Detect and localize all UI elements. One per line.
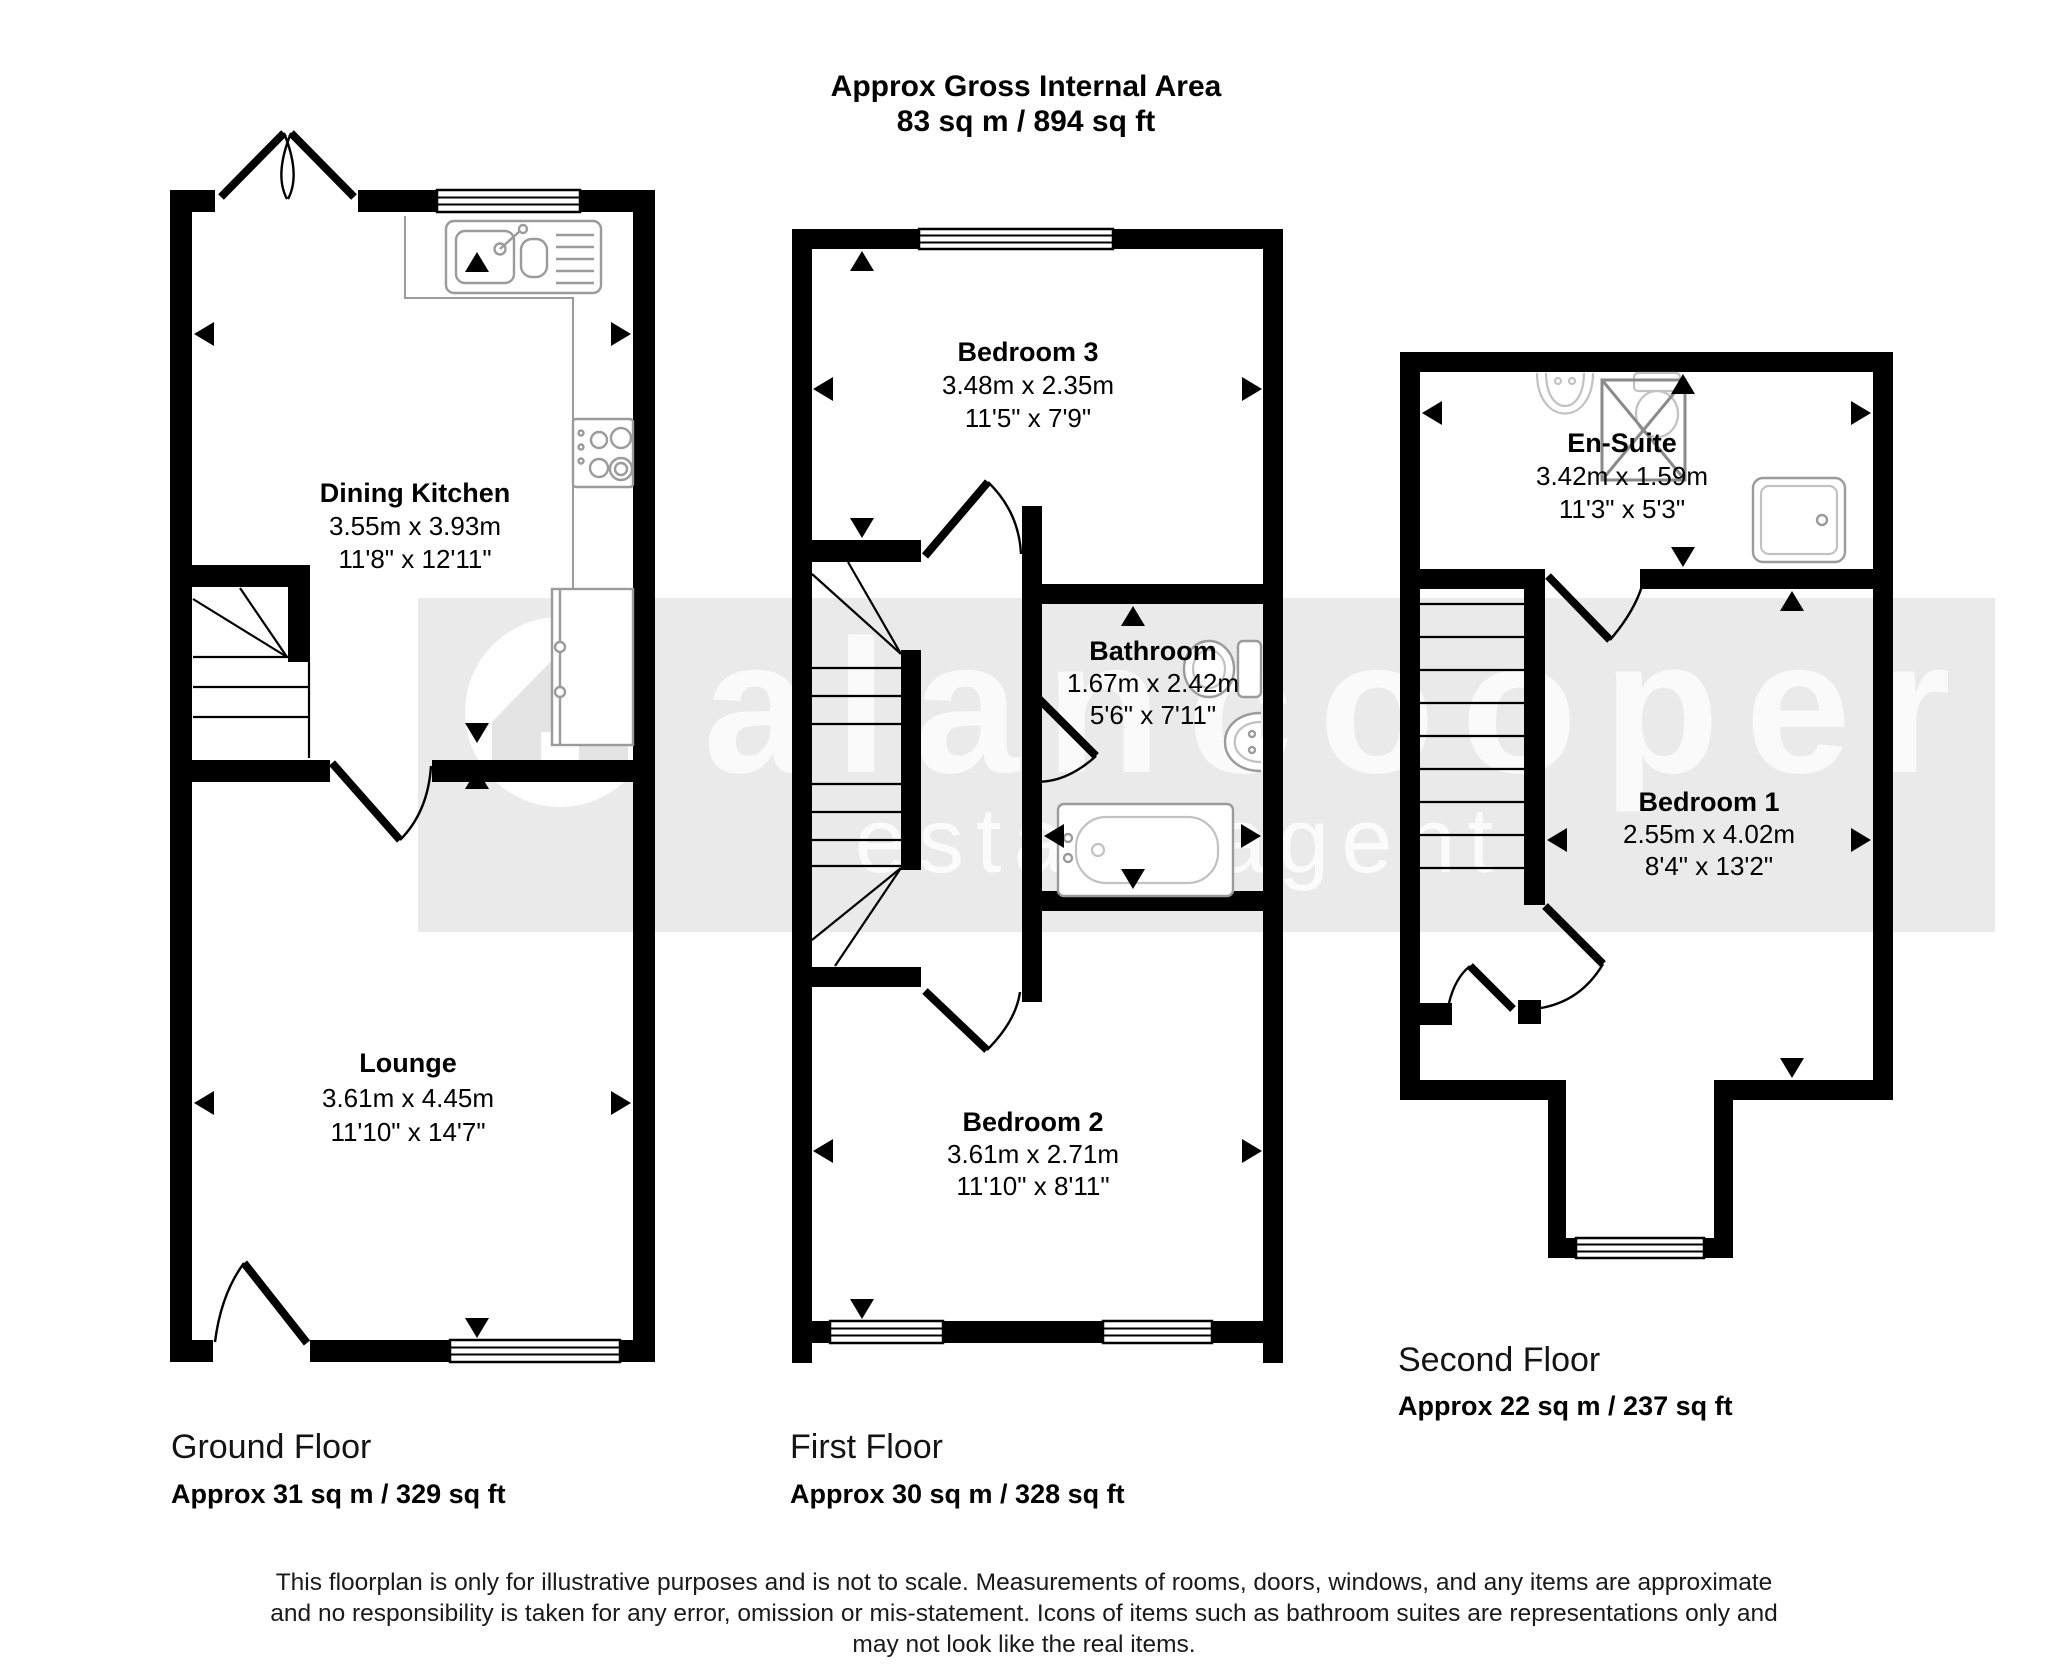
first-window-bottom-right: [1103, 1321, 1212, 1343]
room-name: Bedroom 3: [957, 337, 1098, 367]
front-door: [215, 1263, 307, 1343]
room-metric: 2.55m x 4.02m: [1623, 819, 1795, 849]
bedroom3-door: [925, 482, 1021, 556]
room-label-lounge: Lounge 3.61m x 4.45m 11'10" x 14'7": [322, 1048, 494, 1147]
title-line: Approx Gross Internal Area: [831, 70, 1222, 103]
floor-label-ground: Ground Floor Approx 31 sq m / 329 sq ft: [171, 1428, 506, 1509]
room-imperial: 11'10" x 14'7": [330, 1117, 485, 1147]
floor-area: Approx 22 sq m / 237 sq ft: [1398, 1391, 1733, 1421]
kitchen-sink-icon: [446, 221, 601, 293]
watermark-brand: alancooper: [703, 601, 1977, 813]
room-name: Dining Kitchen: [320, 478, 511, 508]
floor-name: First Floor: [790, 1428, 943, 1466]
shower-icon: [1753, 478, 1845, 562]
room-metric: 1.67m x 2.42m: [1067, 668, 1239, 698]
room-imperial: 5'6" x 7'11": [1090, 700, 1216, 730]
room-label-bedroom2: Bedroom 2 3.61m x 2.71m 11'10" x 8'11": [947, 1107, 1119, 1201]
floor-label-second: Second Floor Approx 22 sq m / 237 sq ft: [1398, 1341, 1733, 1421]
disclaimer-line-1: This floorplan is only for illustrative …: [276, 1569, 1773, 1596]
first-window-bottom-left: [830, 1321, 943, 1343]
landing-door: [1449, 966, 1513, 1009]
room-label-bedroom1: Bedroom 1 2.55m x 4.02m 8'4" x 13'2": [1623, 787, 1795, 881]
floor-name: Second Floor: [1398, 1341, 1600, 1379]
disclaimer: This floorplan is only for illustrative …: [270, 1569, 1777, 1658]
room-imperial: 11'10" x 8'11": [956, 1171, 1109, 1201]
hob-icon: [573, 419, 633, 487]
room-imperial: 11'8" x 12'11": [338, 544, 491, 574]
room-imperial: 11'5" x 7'9": [965, 403, 1091, 433]
basin-icon: [1537, 373, 1593, 414]
room-metric: 3.55m x 3.93m: [329, 511, 501, 541]
room-label-bathroom: Bathroom 1.67m x 2.42m 5'6" x 7'11": [1067, 636, 1239, 730]
bedroom2-door: [925, 991, 1020, 1050]
disclaimer-line-3: may not look like the real items.: [852, 1631, 1195, 1658]
page-title: Approx Gross Internal Area 83 sq m / 894…: [831, 70, 1222, 138]
room-metric: 3.42m x 1.59m: [1536, 461, 1708, 491]
room-metric: 3.48m x 2.35m: [942, 370, 1114, 400]
room-name: En-Suite: [1567, 428, 1677, 458]
room-name: Bedroom 2: [962, 1107, 1103, 1137]
room-metric: 3.61m x 2.71m: [947, 1139, 1119, 1169]
kitchen-lounge-door: [332, 763, 431, 840]
bath-icon: [1058, 804, 1233, 896]
french-doors: [221, 133, 354, 199]
room-metric: 3.61m x 4.45m: [322, 1083, 494, 1113]
ground-window-bottom: [450, 1340, 620, 1362]
room-imperial: 8'4" x 13'2": [1645, 851, 1773, 881]
room-imperial: 11'3" x 5'3": [1559, 494, 1685, 524]
room-name: Lounge: [359, 1048, 456, 1078]
room-label-ensuite: En-Suite 3.42m x 1.59m 11'3" x 5'3": [1536, 428, 1708, 524]
second-bay-window: [1576, 1238, 1704, 1258]
title-subtitle: 83 sq m / 894 sq ft: [897, 105, 1155, 138]
floorplan-page: alancooper estate agent Approx Gross Int…: [0, 0, 2048, 1667]
floor-name: Ground Floor: [171, 1428, 371, 1466]
disclaimer-line-2: and no responsibility is taken for any e…: [270, 1600, 1777, 1627]
floor-label-first: First Floor Approx 30 sq m / 328 sq ft: [790, 1428, 1125, 1509]
floor-area: Approx 31 sq m / 329 sq ft: [171, 1479, 506, 1509]
first-window-top: [919, 229, 1113, 249]
ground-walls: [170, 190, 655, 1362]
room-label-bedroom3: Bedroom 3 3.48m x 2.35m 11'5" x 7'9": [942, 337, 1114, 433]
room-label-dining-kitchen: Dining Kitchen 3.55m x 3.93m 11'8" x 12'…: [320, 478, 511, 574]
room-name: Bedroom 1: [1638, 787, 1779, 817]
floor-area: Approx 30 sq m / 328 sq ft: [790, 1479, 1125, 1509]
room-name: Bathroom: [1089, 636, 1217, 666]
fridge-icon: [552, 589, 633, 745]
ground-window-top: [437, 190, 580, 212]
